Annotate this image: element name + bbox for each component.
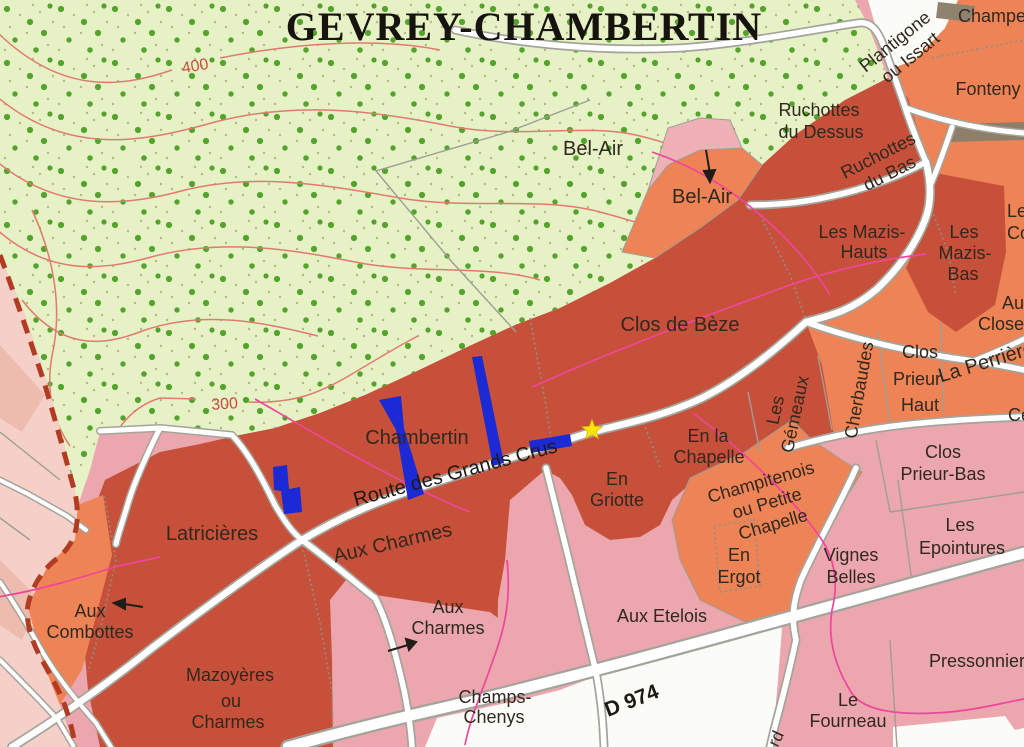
label-line: Belles [826, 567, 875, 587]
label-line: Haut [901, 395, 939, 415]
label-aux-etelois: Aux Etelois [617, 606, 707, 626]
label-line: Ergot [717, 567, 760, 587]
label-clos-de-beze: Clos de Bèze [621, 314, 740, 336]
label-line: Co [1007, 223, 1024, 243]
label-line: Chenys [463, 707, 524, 727]
label-line: du Dessus [778, 122, 863, 142]
label-line: Les [945, 515, 974, 535]
label-line: Mazis- [939, 243, 992, 263]
label-line: Clos [925, 442, 961, 462]
label-line: Clos [902, 342, 938, 362]
label-line: Champs- [458, 687, 531, 707]
label-line: Au [1002, 293, 1024, 313]
label-line: En [606, 469, 628, 489]
label-line: Combottes [46, 622, 133, 642]
label-cercueils-fragment: Ce [1008, 405, 1024, 425]
label-line: Ruchottes [778, 100, 859, 120]
label-bel-air-parcel: Bel-Air [672, 186, 732, 208]
label-line: Mazoyères [186, 665, 274, 685]
label-line: Griotte [590, 490, 644, 510]
label-line: Vignes [824, 545, 879, 565]
label-latricieres: Latricières [166, 523, 258, 545]
map-canvas: GEVREY-CHAMBERTIN 400 300 Bel-Air Bel-Ai… [0, 0, 1024, 747]
label-champeaux: Champe [958, 6, 1024, 26]
contour-label-300: 300 [211, 395, 239, 414]
label-line: Charmes [191, 712, 264, 732]
label-line: ou [221, 691, 241, 711]
label-champs-chenys: Champs- Chenys [458, 687, 531, 727]
label-line: Le [838, 690, 858, 710]
label-chambertin: Chambertin [365, 427, 468, 449]
label-line: Les [949, 222, 978, 242]
label-line: Fourneau [809, 711, 886, 731]
vineyard-map: GEVREY-CHAMBERTIN 400 300 Bel-Air Bel-Ai… [0, 0, 1024, 747]
label-line: Aux [432, 597, 463, 617]
label-line: Les [1007, 201, 1024, 221]
label-line: Prieur-Bas [900, 464, 985, 484]
label-line: Hauts [840, 242, 887, 262]
label-line: En [728, 545, 750, 565]
label-line: Epointures [919, 538, 1005, 558]
label-line: Charmes [411, 618, 484, 638]
label-line: Chapelle [673, 447, 744, 467]
label-pressonnier: Pressonnier [929, 651, 1024, 671]
label-line: Les Mazis- [818, 222, 905, 242]
label-bel-air-forest: Bel-Air [563, 138, 623, 160]
label-line: Bas [947, 264, 978, 284]
label-line: En la [687, 426, 729, 446]
map-title: GEVREY-CHAMBERTIN [286, 4, 762, 49]
label-fonteny: Fonteny [955, 79, 1020, 99]
label-line: Aux [74, 601, 105, 621]
label-line: Close [978, 314, 1024, 334]
